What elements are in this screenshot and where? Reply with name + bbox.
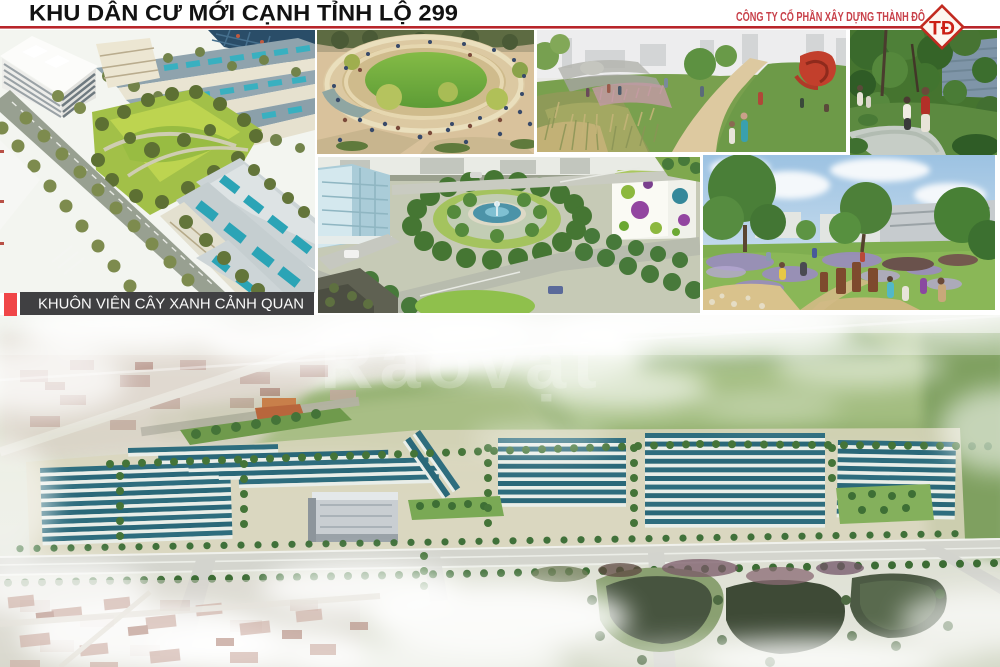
svg-text:KHU DÂN CƯ MỚI CẠNH TỈNH LỘ 29: KHU DÂN CƯ MỚI CẠNH TỈNH LỘ 299 xyxy=(29,1,458,26)
svg-text:Raovặt: Raovặt xyxy=(320,321,603,404)
svg-text:TĐ: TĐ xyxy=(929,18,955,40)
svg-text:CÔNG TY CỔ PHẦN XÂY DỰNG THÀN: CÔNG TY CỔ PHẦN XÂY DỰNG THÀNH ĐÔ xyxy=(736,9,925,24)
svg-text:KHUÔN VIÊN CÂY XANH CẢNH QUAN: KHUÔN VIÊN CÂY XANH CẢNH QUAN xyxy=(38,296,304,313)
